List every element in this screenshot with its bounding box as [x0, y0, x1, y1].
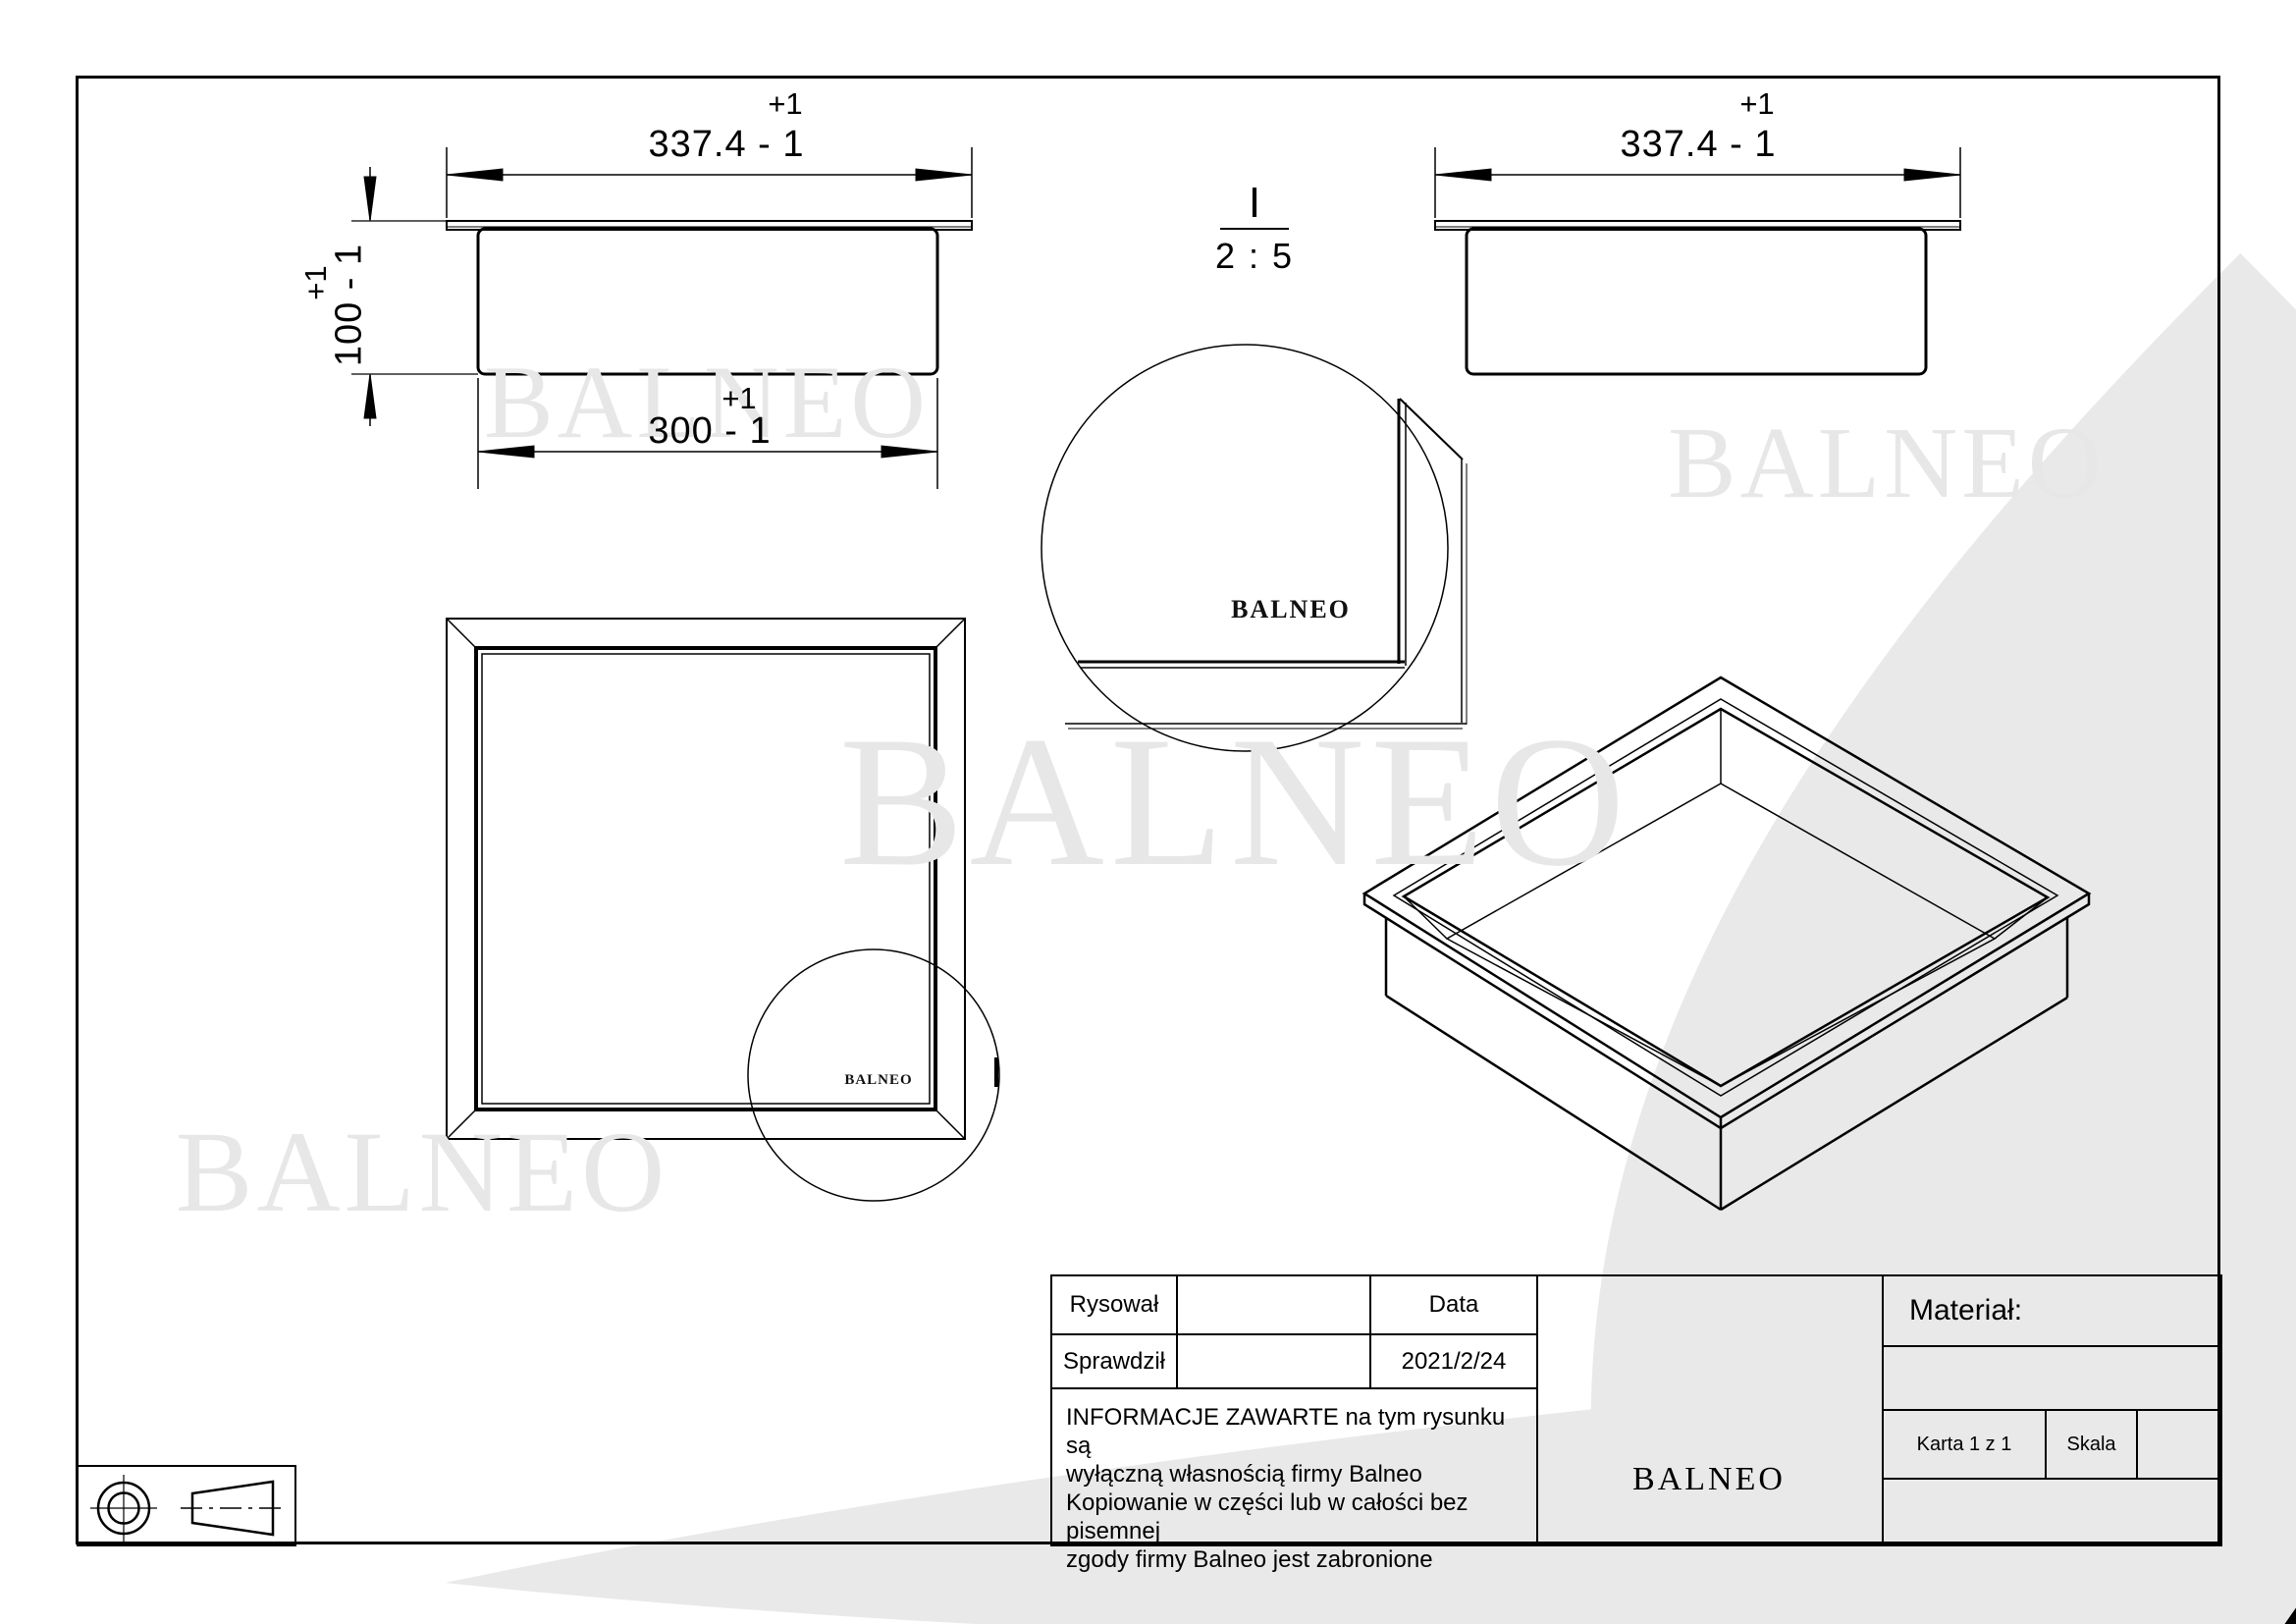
info-line: zgody firmy Balneo jest zabronione — [1066, 1545, 1526, 1574]
titleblock-material-label: Materiał: — [1882, 1274, 2222, 1347]
info-line: wyłączną własnością firmy Balneo — [1066, 1460, 1526, 1489]
detail-embossed-brand: BALNEO — [1222, 595, 1360, 624]
dim-front-right-width-tol: +1 — [1723, 86, 1791, 122]
titleblock-date-label: Data — [1369, 1274, 1538, 1335]
dim-front-left-inner: 300 - 1 — [636, 410, 783, 453]
detail-view-label: I — [1235, 179, 1274, 228]
dim-front-left-width: 337.4 - 1 — [638, 124, 815, 166]
titleblock-bottom-empty — [1882, 1478, 2222, 1546]
titleblock-logo-cell — [1536, 1274, 1884, 1546]
dim-front-right-width: 337.4 - 1 — [1610, 124, 1787, 166]
titleblock-checked-value — [1176, 1333, 1371, 1389]
drawing-sheet: BALNEO BALNEO BALNEO BALNEO 337.4 - 1 +1… — [0, 0, 2296, 1624]
projection-symbol-box — [77, 1465, 296, 1546]
titleblock-checked-label: Sprawdził — [1050, 1333, 1178, 1389]
titleblock-scale-value — [2136, 1409, 2222, 1480]
titleblock-brand-text: BALNEO — [1611, 1461, 1807, 1498]
titleblock-sheet-label: Karta 1 z 1 — [1882, 1409, 2047, 1480]
dim-front-left-height-tol: +1 — [298, 253, 334, 312]
plan-detail-label: I — [982, 1049, 1011, 1098]
dim-front-left-inner-tol: +1 — [705, 381, 774, 416]
plan-embossed-brand: BALNEO — [839, 1072, 918, 1089]
dim-front-left-height: 100 - 1 — [329, 237, 371, 374]
info-line: Kopiowanie w części lub w całości bez pi… — [1066, 1489, 1526, 1545]
dim-front-left-width-tol: +1 — [751, 86, 820, 122]
detail-view-scale: 2 : 5 — [1210, 236, 1299, 277]
titleblock-scale-label: Skala — [2045, 1409, 2138, 1480]
info-line: INFORMACJE ZAWARTE na tym rysunku są — [1066, 1403, 1526, 1460]
titleblock-drawn-value — [1176, 1274, 1371, 1335]
titleblock-material-value — [1882, 1345, 2222, 1411]
titleblock-info: INFORMACJE ZAWARTE na tym rysunku są wył… — [1050, 1387, 1538, 1546]
titleblock-drawn-label: Rysował — [1050, 1274, 1178, 1335]
titleblock-date-value: 2021/2/24 — [1369, 1333, 1538, 1389]
